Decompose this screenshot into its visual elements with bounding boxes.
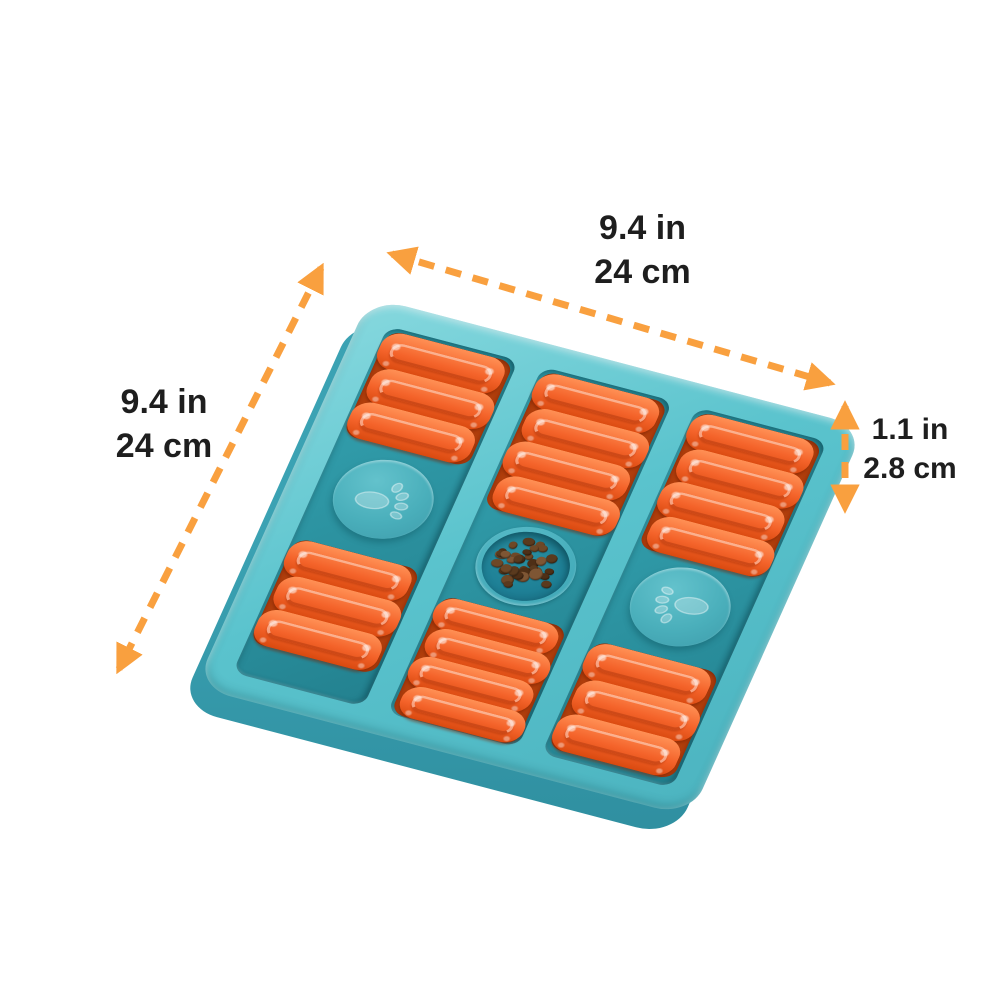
height-cm: 24 cm xyxy=(84,424,244,468)
puzzle-feeder-board xyxy=(195,297,865,817)
width-inches: 9.4 in xyxy=(545,206,740,250)
board-top-face xyxy=(195,297,865,817)
paw-icon xyxy=(624,563,736,651)
width-dimension-label: 9.4 in 24 cm xyxy=(545,206,740,294)
slider-group xyxy=(548,640,721,780)
product-dimensions-image: 9.4 in 24 cm 9.4 in 24 cm 1.1 in 2.8 cm xyxy=(0,0,1000,1000)
width-cm: 24 cm xyxy=(545,250,740,294)
depth-cm: 2.8 cm xyxy=(848,449,972,488)
kibble-piece xyxy=(540,579,553,589)
kibble-pile xyxy=(470,523,583,610)
slider-group xyxy=(483,371,669,539)
food-well xyxy=(461,516,590,616)
height-dimension-label: 9.4 in 24 cm xyxy=(84,380,244,468)
kibble-piece xyxy=(507,541,518,550)
slider-group xyxy=(343,330,515,467)
depth-dimension-label: 1.1 in 2.8 cm xyxy=(848,410,972,488)
slider-group xyxy=(390,595,568,746)
slider-group xyxy=(249,538,421,675)
paw-button xyxy=(319,449,448,549)
slider-group xyxy=(637,411,823,579)
paw-button xyxy=(616,557,745,657)
paw-icon xyxy=(327,455,439,543)
depth-inches: 1.1 in xyxy=(848,410,972,449)
height-inches: 9.4 in xyxy=(84,380,244,424)
